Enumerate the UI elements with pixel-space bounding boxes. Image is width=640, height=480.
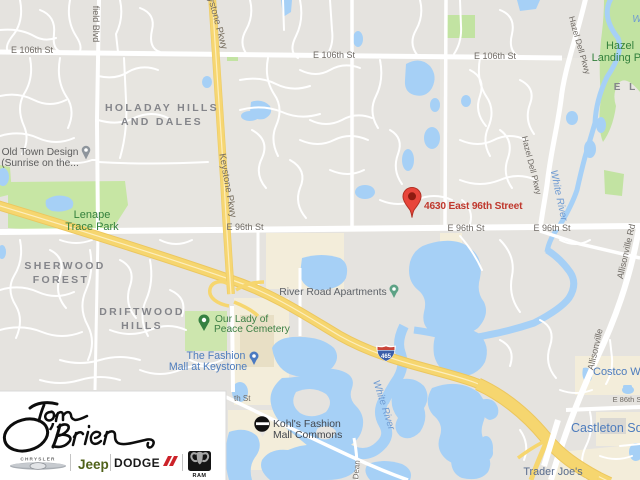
- svg-text:Trace Park: Trace Park: [65, 221, 119, 233]
- svg-text:Lenape: Lenape: [74, 209, 111, 221]
- svg-text:DODGE: DODGE: [114, 456, 160, 470]
- svg-text:Kohl's Fashion: Kohl's Fashion: [273, 419, 341, 430]
- svg-text:Old Town Design: Old Town Design: [2, 147, 79, 158]
- svg-text:Mall at Keystone: Mall at Keystone: [169, 361, 247, 373]
- svg-text:E 96th St: E 96th St: [226, 222, 264, 232]
- svg-text:SHERWOOD: SHERWOOD: [24, 260, 105, 272]
- svg-text:FOREST: FOREST: [33, 274, 89, 286]
- svg-text:CHRYSLER: CHRYSLER: [20, 457, 55, 462]
- svg-text:Peace Cemetery: Peace Cemetery: [214, 324, 291, 335]
- svg-text:E 96th St: E 96th St: [447, 223, 485, 233]
- svg-text:Mall Commons: Mall Commons: [273, 430, 342, 441]
- svg-text:E 106th St: E 106th St: [474, 51, 517, 61]
- svg-text:HILLS: HILLS: [121, 320, 163, 332]
- svg-text:4630 East 96th Street: 4630 East 96th Street: [424, 201, 523, 212]
- svg-text:465: 465: [381, 354, 392, 360]
- svg-text:W: W: [632, 14, 640, 25]
- svg-text:River Road Apartments: River Road Apartments: [279, 287, 386, 298]
- svg-text:Landing Park: Landing Park: [592, 52, 640, 64]
- svg-text:RAM: RAM: [192, 473, 206, 479]
- svg-text:E 106th St: E 106th St: [313, 50, 356, 60]
- svg-text:Trader Joe's: Trader Joe's: [523, 466, 583, 478]
- svg-text:th St: th St: [234, 394, 251, 403]
- svg-text:Costco Whol: Costco Whol: [593, 366, 640, 378]
- svg-text:E L: E L: [614, 82, 639, 93]
- svg-text:Hazel: Hazel: [606, 40, 634, 52]
- svg-text:DRIFTWOOD: DRIFTWOOD: [99, 306, 184, 318]
- svg-text:(Sunrise on the...: (Sunrise on the...: [1, 158, 79, 169]
- svg-text:E 86th St: E 86th St: [613, 395, 640, 404]
- svg-text:Dean: Dean: [351, 460, 362, 480]
- svg-text:E 106th St: E 106th St: [11, 45, 54, 55]
- svg-text:AND DALES: AND DALES: [121, 116, 203, 128]
- svg-text:HOLADAY HILLS: HOLADAY HILLS: [105, 102, 219, 114]
- svg-text:Castleton Square: Castleton Square: [571, 421, 640, 435]
- svg-text:E 96th St: E 96th St: [533, 223, 571, 233]
- svg-text:Jeep: Jeep: [78, 457, 109, 472]
- svg-text:field Blvd: field Blvd: [91, 6, 101, 43]
